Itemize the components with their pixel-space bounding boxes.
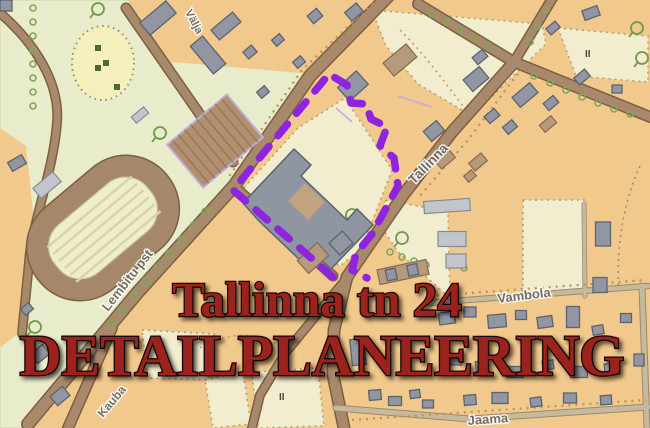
street-label-jaama: Jaama — [467, 410, 509, 428]
plan-title-line2: DETAILPLANEERING — [20, 323, 625, 388]
town-map: II II Välja Tallinna Lembitu pst Kauba V… — [0, 0, 650, 428]
detailplan-map-screenshot: II II Välja Tallinna Lembitu pst Kauba V… — [0, 0, 650, 428]
storeys-marker-south: II — [279, 392, 285, 403]
plan-title-line1: Tallinna tn 24 — [172, 272, 462, 327]
playground-area — [72, 26, 134, 100]
storeys-marker-ne: II — [585, 49, 591, 60]
